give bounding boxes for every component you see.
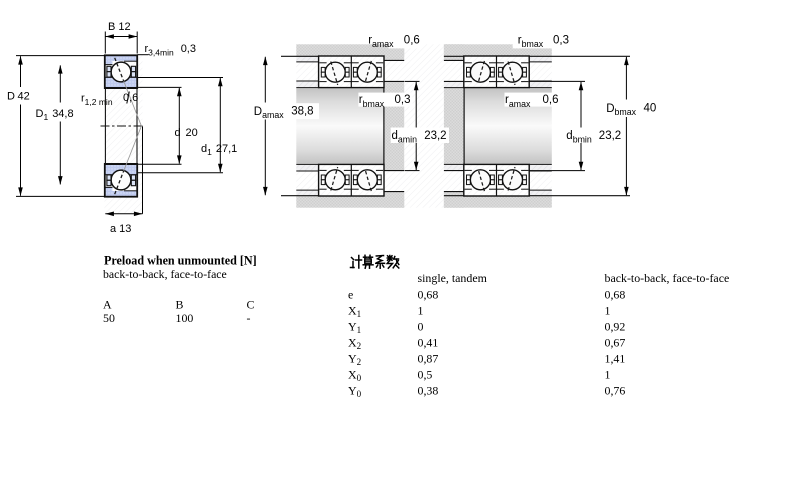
svg-text:23,2: 23,2 bbox=[424, 130, 446, 142]
svg-text:1: 1 bbox=[605, 367, 611, 381]
svg-text:0,76: 0,76 bbox=[605, 383, 626, 397]
svg-text:23,2: 23,2 bbox=[599, 130, 621, 142]
svg-text:C: C bbox=[247, 298, 255, 312]
svg-text:d127,1: d127,1 bbox=[201, 143, 237, 157]
svg-text:D: D bbox=[7, 91, 15, 103]
svg-text:0,68: 0,68 bbox=[605, 287, 626, 301]
svg-text:back-to-back, face-to-face: back-to-back, face-to-face bbox=[605, 271, 730, 285]
svg-text:single, tandem: single, tandem bbox=[418, 271, 488, 285]
svg-text:0,92: 0,92 bbox=[605, 319, 626, 333]
svg-text:38,8: 38,8 bbox=[291, 106, 313, 118]
svg-text:-: - bbox=[247, 311, 251, 325]
svg-text:0,3: 0,3 bbox=[553, 34, 569, 46]
svg-text:e: e bbox=[348, 287, 353, 301]
svg-text:42: 42 bbox=[18, 91, 30, 103]
svg-text:0,6: 0,6 bbox=[543, 94, 559, 106]
svg-text:back-to-back, face-to-face: back-to-back, face-to-face bbox=[103, 267, 227, 281]
svg-text:20: 20 bbox=[186, 127, 198, 139]
svg-text:0,41: 0,41 bbox=[418, 335, 439, 349]
svg-text:0,6: 0,6 bbox=[404, 34, 420, 46]
svg-text:A: A bbox=[103, 298, 112, 312]
svg-text:0,67: 0,67 bbox=[605, 335, 626, 349]
svg-text:40: 40 bbox=[644, 102, 657, 114]
svg-text:50: 50 bbox=[103, 311, 115, 325]
svg-text:0,6: 0,6 bbox=[123, 92, 138, 104]
svg-text:B 12: B 12 bbox=[108, 21, 131, 33]
svg-text:1,41: 1,41 bbox=[605, 351, 626, 365]
svg-text:0,87: 0,87 bbox=[418, 351, 439, 365]
svg-text:D134,8: D134,8 bbox=[36, 108, 74, 122]
svg-text:a 13: a 13 bbox=[110, 223, 131, 235]
svg-text:0,3: 0,3 bbox=[395, 94, 411, 106]
svg-text:B: B bbox=[176, 298, 184, 312]
svg-text:0,5: 0,5 bbox=[418, 367, 433, 381]
svg-text:0,38: 0,38 bbox=[418, 383, 439, 397]
svg-text:0,68: 0,68 bbox=[418, 287, 439, 301]
svg-text:d: d bbox=[175, 127, 181, 139]
svg-text:100: 100 bbox=[176, 311, 194, 325]
svg-text:Preload when unmounted [N]: Preload when unmounted [N] bbox=[104, 254, 257, 268]
svg-text:0: 0 bbox=[418, 319, 424, 333]
svg-text:1: 1 bbox=[418, 303, 424, 317]
svg-text:1: 1 bbox=[605, 303, 611, 317]
